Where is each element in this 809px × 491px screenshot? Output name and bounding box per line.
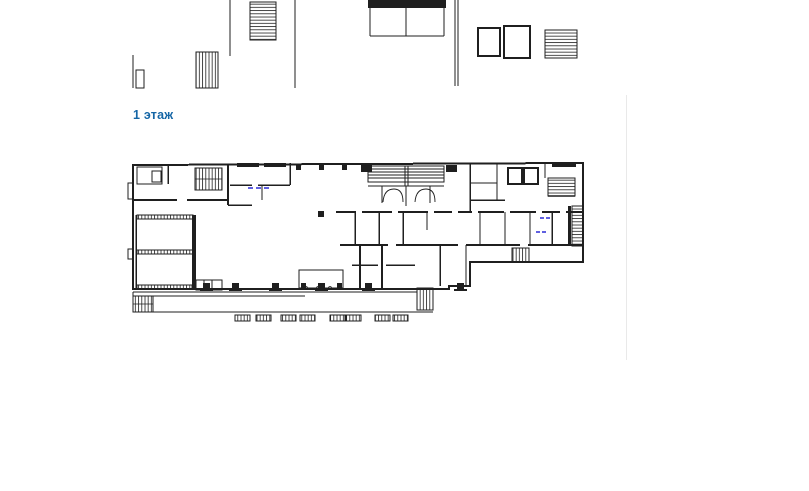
stair-top-left-icon (195, 168, 222, 190)
stair-right-lower-icon (512, 248, 529, 262)
window-sills-row (235, 315, 408, 321)
bottom-apron (133, 292, 433, 312)
stair-bottom-right-icon (417, 288, 433, 310)
entry-steps-left-icon (133, 296, 153, 312)
left-halls (136, 215, 222, 290)
entrance-door-swings (383, 189, 435, 202)
furniture-marks-blue (536, 218, 552, 232)
first-floor-plan-drawing (128, 163, 583, 321)
lobby-columns (296, 165, 457, 217)
right-section (458, 163, 583, 245)
entrance-canopy (368, 166, 444, 206)
stair-right-edge-icon (568, 206, 583, 246)
stair-top-right-icon (548, 178, 575, 196)
upper-floor-plan-fragment (133, 0, 577, 88)
plans-canvas (0, 0, 809, 491)
centre-rooms (336, 212, 583, 289)
